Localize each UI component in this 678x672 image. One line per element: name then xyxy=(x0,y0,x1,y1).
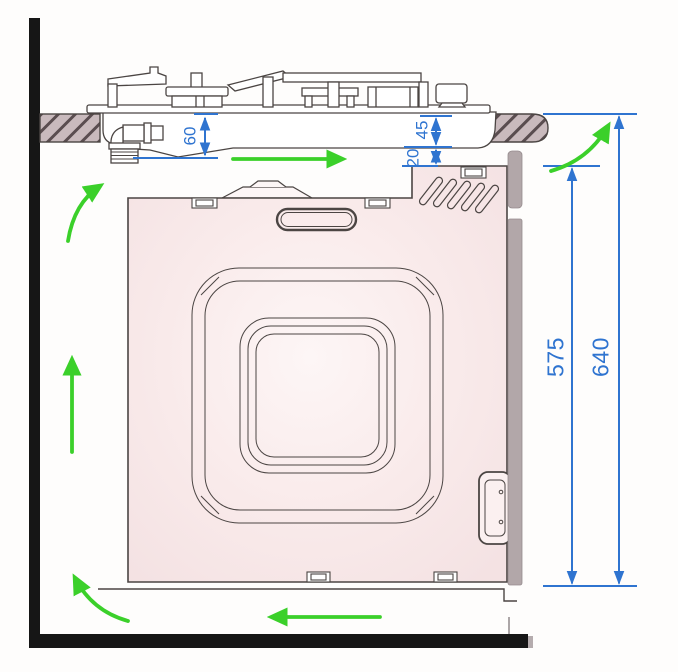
dimension-label-45: 45 xyxy=(414,121,431,140)
oven-top-hump xyxy=(222,181,312,198)
dimension-label-575: 575 xyxy=(545,337,568,377)
worktop-left-section xyxy=(40,114,100,142)
floor xyxy=(29,634,528,648)
airflow-arrow-bottom-left-curve xyxy=(75,578,128,621)
floor-end-cap xyxy=(528,636,533,648)
hob-top-plate xyxy=(87,105,490,113)
cabinet-base-lines xyxy=(98,589,517,634)
dimension-label-20: 20 xyxy=(405,149,422,168)
oven xyxy=(128,166,511,582)
dimension-label-60: 60 xyxy=(182,127,199,146)
airflow-arrow-top-left-curve xyxy=(68,186,100,241)
oven-body xyxy=(128,166,507,582)
left-wall xyxy=(29,18,40,648)
dimension-label-640: 640 xyxy=(590,337,613,377)
oven-door-edge xyxy=(508,151,522,585)
burners-and-pan-supports xyxy=(108,67,467,107)
door-hinge-bracket xyxy=(479,472,511,544)
diagram-canvas xyxy=(0,0,678,672)
airflow-arrow-right-up-curve xyxy=(551,126,608,171)
installation-diagram: 60 45 20 575 640 xyxy=(0,0,678,672)
